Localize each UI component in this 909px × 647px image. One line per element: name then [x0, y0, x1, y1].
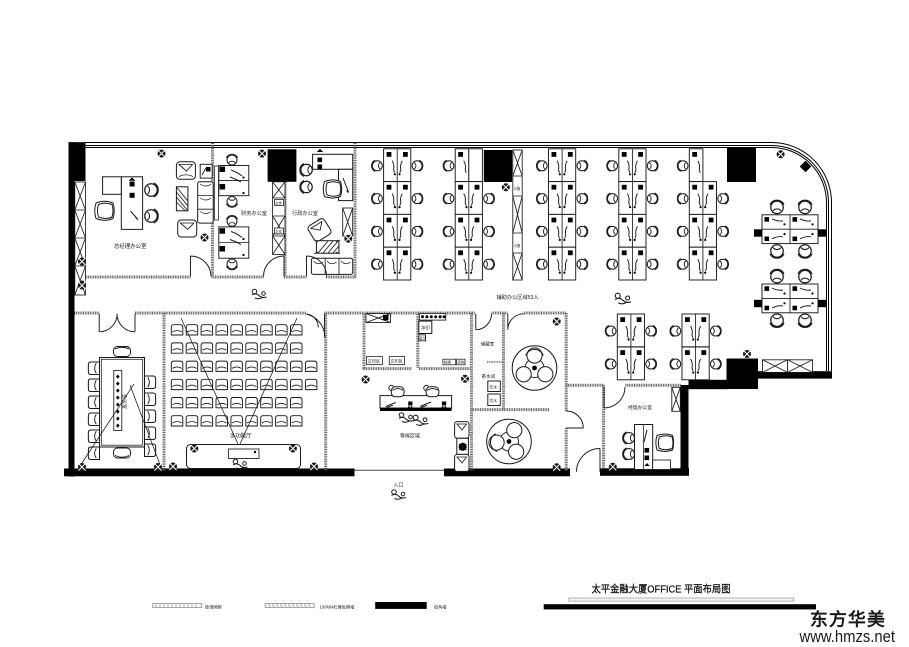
svg-text:等候区域: 等候区域 — [400, 433, 420, 440]
svg-text:入口: 入口 — [394, 483, 404, 489]
svg-text:总经理办公室: 总经理办公室 — [114, 242, 147, 250]
svg-text:文件: 文件 — [275, 229, 283, 234]
svg-text:饮水: 饮水 — [490, 385, 498, 390]
svg-text:辅助办公区域53人: 辅助办公区域53人 — [497, 293, 539, 301]
svg-text:会议室: 会议室 — [121, 394, 128, 409]
svg-text:文件: 文件 — [275, 200, 283, 205]
svg-text:结构墙: 结构墙 — [434, 603, 447, 610]
svg-text:档案: 档案 — [444, 360, 452, 365]
svg-text:100MM石膏板隔墙: 100MM石膏板隔墙 — [320, 603, 355, 610]
svg-text:冲印: 冲印 — [421, 325, 430, 332]
svg-text:财务办公室: 财务办公室 — [241, 209, 267, 217]
svg-text:行政办公室: 行政办公室 — [292, 209, 318, 217]
svg-text:玻璃隔断: 玻璃隔断 — [205, 603, 223, 610]
svg-text:2施: 2施 — [514, 185, 520, 191]
svg-text:www.hmzs.net: www.hmzs.net — [799, 627, 896, 646]
svg-text:2施: 2施 — [514, 242, 520, 248]
svg-text:饮水: 饮水 — [490, 398, 498, 403]
svg-text:储藏室: 储藏室 — [481, 341, 495, 348]
svg-text:文印区: 文印区 — [368, 358, 381, 365]
svg-text:审批: 审批 — [457, 360, 465, 365]
svg-text:文印区: 文印区 — [390, 358, 403, 365]
svg-text:茶水间: 茶水间 — [482, 373, 496, 380]
svg-text:多功能厅: 多功能厅 — [230, 432, 252, 440]
svg-text:复印: 复印 — [419, 336, 426, 341]
svg-text:太平金融大厦OFFICE 平面布局图: 太平金融大厦OFFICE 平面布局图 — [592, 583, 731, 596]
svg-text:经理办公室: 经理办公室 — [628, 404, 652, 411]
